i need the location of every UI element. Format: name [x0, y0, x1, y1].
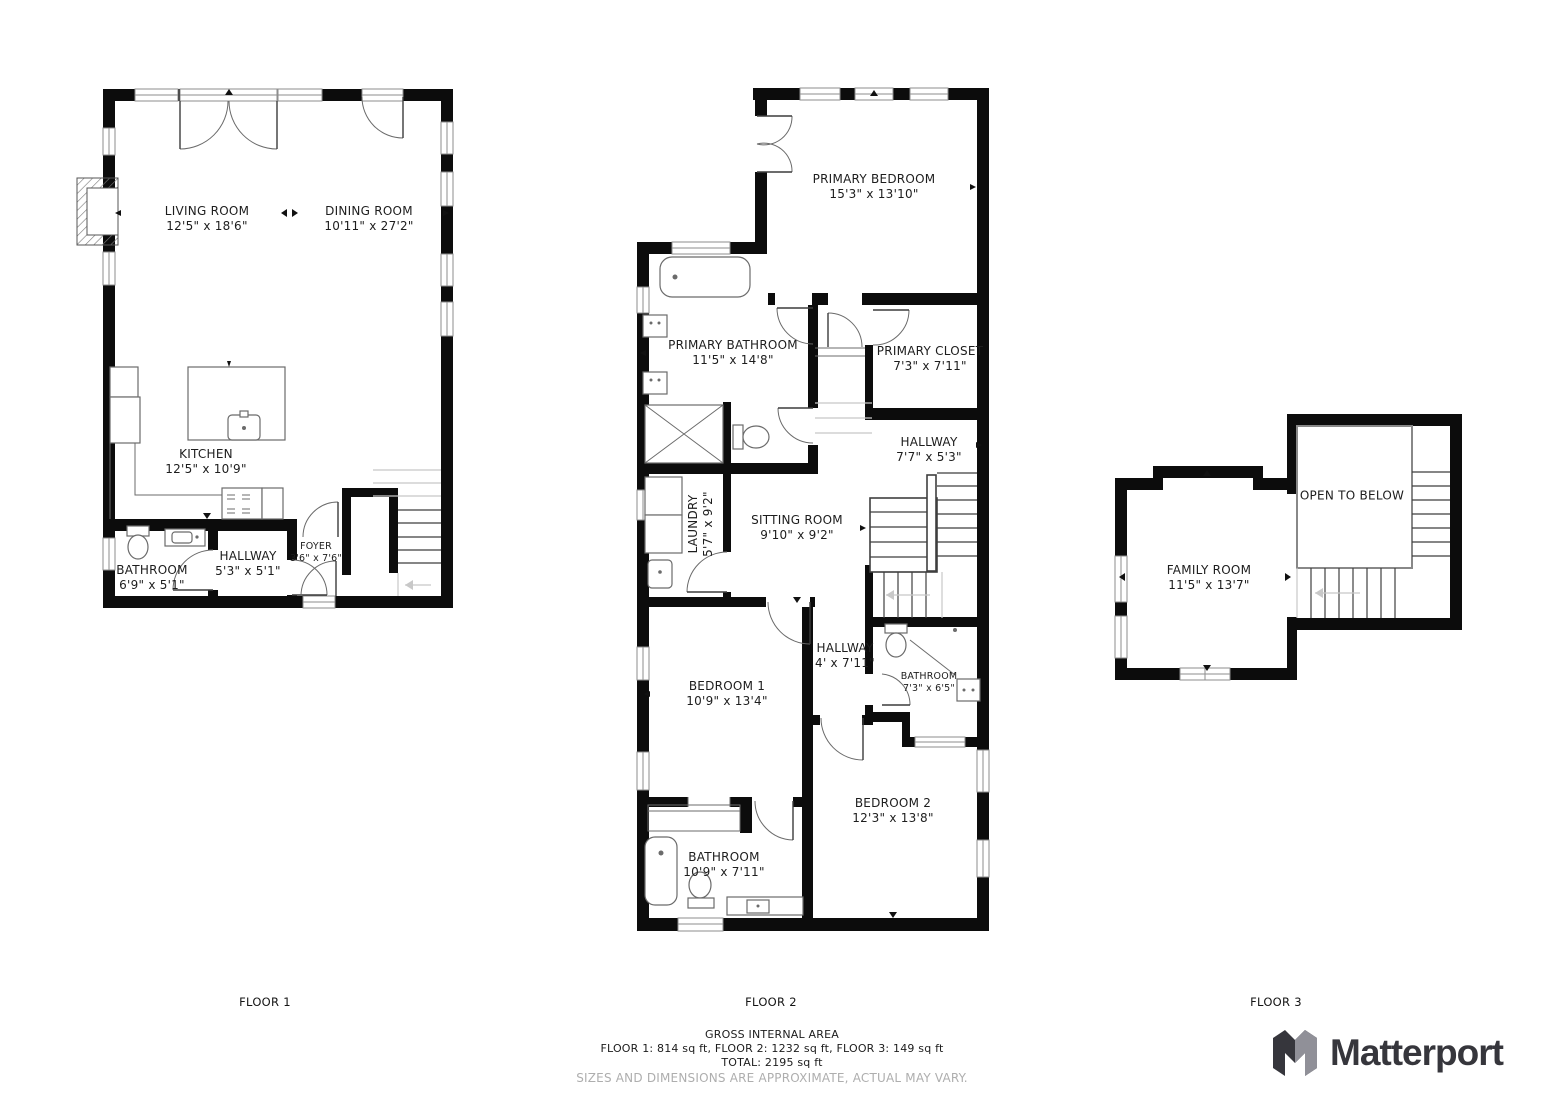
size-disclaimer: SIZES AND DIMENSIONS ARE APPROXIMATE, AC… [576, 1071, 968, 1085]
stove-icon [222, 488, 283, 519]
room-dims: 11'5" x 14'8" [668, 353, 798, 368]
kitchen-island [188, 367, 285, 440]
floor2-label: FLOOR 2 [745, 995, 797, 1009]
room-name: HALLWAY [815, 641, 875, 656]
room-name: BATHROOM [683, 850, 764, 865]
room-label-sitting-room: SITTING ROOM 9'10" x 9'2" [751, 513, 843, 543]
room-dims: 7'3" x 7'11" [877, 359, 984, 374]
room-dims: 5'7" x 9'2" [701, 491, 716, 557]
floorplan-page: LIVING ROOM 12'5" x 18'6" DINING ROOM 10… [0, 0, 1545, 1093]
room-name: BATHROOM [116, 563, 187, 578]
room-name: SITTING ROOM [751, 513, 843, 528]
floor1-walls [103, 89, 453, 608]
room-label-bathroom-bottom: BATHROOM 10'9" x 7'11" [683, 850, 764, 880]
floor3-plan [1110, 410, 1470, 685]
matterport-logo: Matterport [1270, 1026, 1503, 1080]
gross-internal-area-title: GROSS INTERNAL AREA [576, 1028, 968, 1042]
room-name: LIVING ROOM [165, 204, 249, 219]
room-dims: 10'11" x 27'2" [324, 219, 413, 234]
room-dims: 3'6" x 7'6" [290, 553, 342, 565]
room-dims: 6'9" x 5'1" [116, 578, 187, 593]
room-name: BEDROOM 2 [852, 796, 933, 811]
room-label-bathroom-upper-right: BATHROOM 7'3" x 6'5" [901, 671, 958, 695]
room-name: PRIMARY CLOSET [877, 344, 984, 359]
room-dims: 15'3" x 13'10" [813, 187, 936, 202]
area-total: TOTAL: 2195 sq ft [576, 1056, 968, 1070]
room-label-hallway-upper: HALLWAY 7'7" x 5'3" [896, 435, 962, 465]
area-breakdown: FLOOR 1: 814 sq ft, FLOOR 2: 1232 sq ft,… [576, 1042, 968, 1056]
toilet-icon [127, 526, 149, 559]
room-label-hallway-f1: HALLWAY 5'3" x 5'1" [215, 549, 281, 579]
room-dims: 5'3" x 5'1" [215, 564, 281, 579]
room-name: PRIMARY BEDROOM [813, 172, 936, 187]
area-summary: GROSS INTERNAL AREA FLOOR 1: 814 sq ft, … [576, 1028, 968, 1085]
room-dims: 12'5" x 18'6" [165, 219, 249, 234]
room-name: OPEN TO BELOW [1300, 489, 1404, 504]
room-label-open-to-below: OPEN TO BELOW [1300, 489, 1404, 504]
room-name: DINING ROOM [324, 204, 413, 219]
room-dims: 12'3" x 13'8" [852, 811, 933, 826]
room-label-foyer: FOYER 3'6" x 7'6" [290, 541, 342, 565]
room-label-hallway-lower: HALLWAY 4' x 7'11" [815, 641, 875, 671]
room-name: KITCHEN [165, 447, 246, 462]
room-label-kitchen: KITCHEN 12'5" x 10'9" [165, 447, 246, 477]
room-dims: 9'10" x 9'2" [751, 528, 843, 543]
room-dims: 10'9" x 13'4" [686, 694, 767, 709]
room-dims: 11'5" x 13'7" [1167, 578, 1251, 593]
floor1-plan [75, 85, 460, 615]
room-dims: 7'3" x 6'5" [901, 683, 958, 695]
room-dims: 12'5" x 10'9" [165, 462, 246, 477]
floor2-doors [687, 116, 910, 840]
room-label-primary-closet: PRIMARY CLOSET 7'3" x 7'11" [877, 344, 984, 374]
room-name: BEDROOM 1 [686, 679, 767, 694]
floor3-label: FLOOR 3 [1250, 995, 1302, 1009]
room-name: BATHROOM [901, 671, 958, 683]
room-label-primary-bathroom: PRIMARY BATHROOM 11'5" x 14'8" [668, 338, 798, 368]
room-name: HALLWAY [896, 435, 962, 450]
sink-icon [165, 529, 205, 546]
room-label-family-room: FAMILY ROOM 11'5" x 13'7" [1167, 563, 1251, 593]
room-name: FAMILY ROOM [1167, 563, 1251, 578]
room-label-primary-bedroom: PRIMARY BEDROOM 15'3" x 13'10" [813, 172, 936, 202]
room-name: PRIMARY BATHROOM [668, 338, 798, 353]
floor1-label: FLOOR 1 [239, 995, 291, 1009]
bedroom1-closet [648, 805, 740, 831]
floor2-plan [630, 85, 995, 935]
room-dims: 4' x 7'11" [815, 656, 875, 671]
room-label-bathroom-f1: BATHROOM 6'9" x 5'1" [116, 563, 187, 593]
room-label-bedroom-1: BEDROOM 1 10'9" x 13'4" [686, 679, 767, 709]
room-name: LAUNDRY [686, 491, 701, 557]
room-label-dining-room: DINING ROOM 10'11" x 27'2" [324, 204, 413, 234]
matterport-m-icon [1270, 1026, 1320, 1080]
room-label-laundry: LAUNDRY 5'7" x 9'2" [686, 491, 716, 557]
room-dims: 10'9" x 7'11" [683, 865, 764, 880]
floor3-walls [1115, 414, 1462, 680]
room-label-living-room: LIVING ROOM 12'5" x 18'6" [165, 204, 249, 234]
room-dims: 7'7" x 5'3" [896, 450, 962, 465]
washer-dryer-icon [645, 477, 682, 553]
room-name: HALLWAY [215, 549, 281, 564]
matterport-wordmark: Matterport [1330, 1032, 1503, 1074]
room-name: FOYER [290, 541, 342, 553]
fireplace-icon [77, 178, 118, 245]
room-label-bedroom-2: BEDROOM 2 12'3" x 13'8" [852, 796, 933, 826]
